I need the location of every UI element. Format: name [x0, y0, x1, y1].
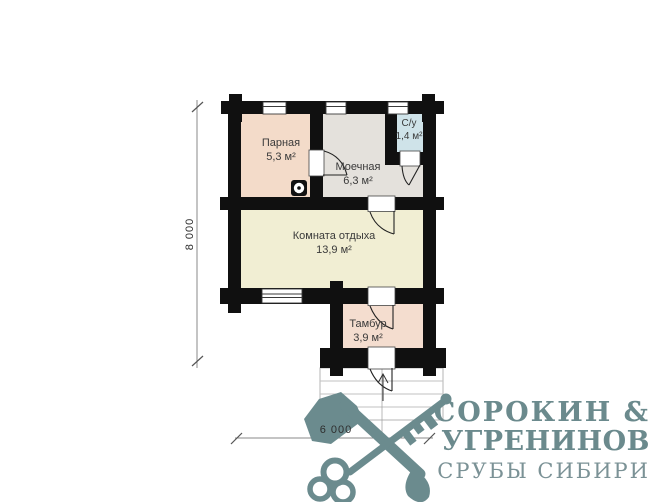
- room-name: Комната отдыха: [266, 229, 402, 243]
- door-moechnaya-opening: [368, 196, 395, 212]
- label-parnaya: Парная 5,3 м²: [239, 136, 323, 164]
- room-area: 1,4 м²: [388, 130, 430, 143]
- window-komnata: [262, 289, 302, 303]
- label-tambur: Тамбур 3,9 м²: [330, 317, 406, 345]
- window-parnaya: [263, 102, 286, 114]
- room-name: Парная: [239, 136, 323, 150]
- label-komnata-otdyha: Комната отдыха 13,9 м²: [266, 229, 402, 257]
- room-name: Тамбур: [330, 317, 406, 331]
- company-logo: СОРОКИН & УГРЕНИНОВ СРУБЫ СИБИРИ: [434, 398, 650, 484]
- room-name: С/у: [388, 117, 430, 130]
- room-area: 6,3 м²: [314, 174, 402, 188]
- room-area: 3,9 м²: [330, 331, 406, 345]
- logo-line-3: СРУБЫ СИБИРИ: [434, 458, 650, 484]
- logo-line-2: УГРЕНИНОВ: [434, 427, 650, 456]
- label-su: С/у 1,4 м²: [388, 117, 430, 143]
- room-area: 13,9 м²: [266, 243, 402, 257]
- room-name: Моечная: [314, 160, 402, 174]
- stove-drain-icon: [291, 180, 307, 196]
- window-su: [388, 102, 408, 114]
- door-su-opening: [400, 151, 420, 166]
- label-moechnaya: Моечная 6,3 м²: [314, 160, 402, 188]
- dimension-label-vertical: 8 000: [184, 204, 196, 264]
- door-entrance-opening: [368, 347, 395, 369]
- dimension-label-horizontal: 6 000: [310, 424, 362, 436]
- door-tambur-opening: [368, 287, 395, 306]
- window-moechnaya: [326, 102, 346, 114]
- room-area: 5,3 м²: [239, 150, 323, 164]
- floor-plan-page: Парная 5,3 м² Моечная 6,3 м² С/у 1,4 м² …: [0, 0, 667, 502]
- logo-line-1: СОРОКИН &: [434, 398, 650, 427]
